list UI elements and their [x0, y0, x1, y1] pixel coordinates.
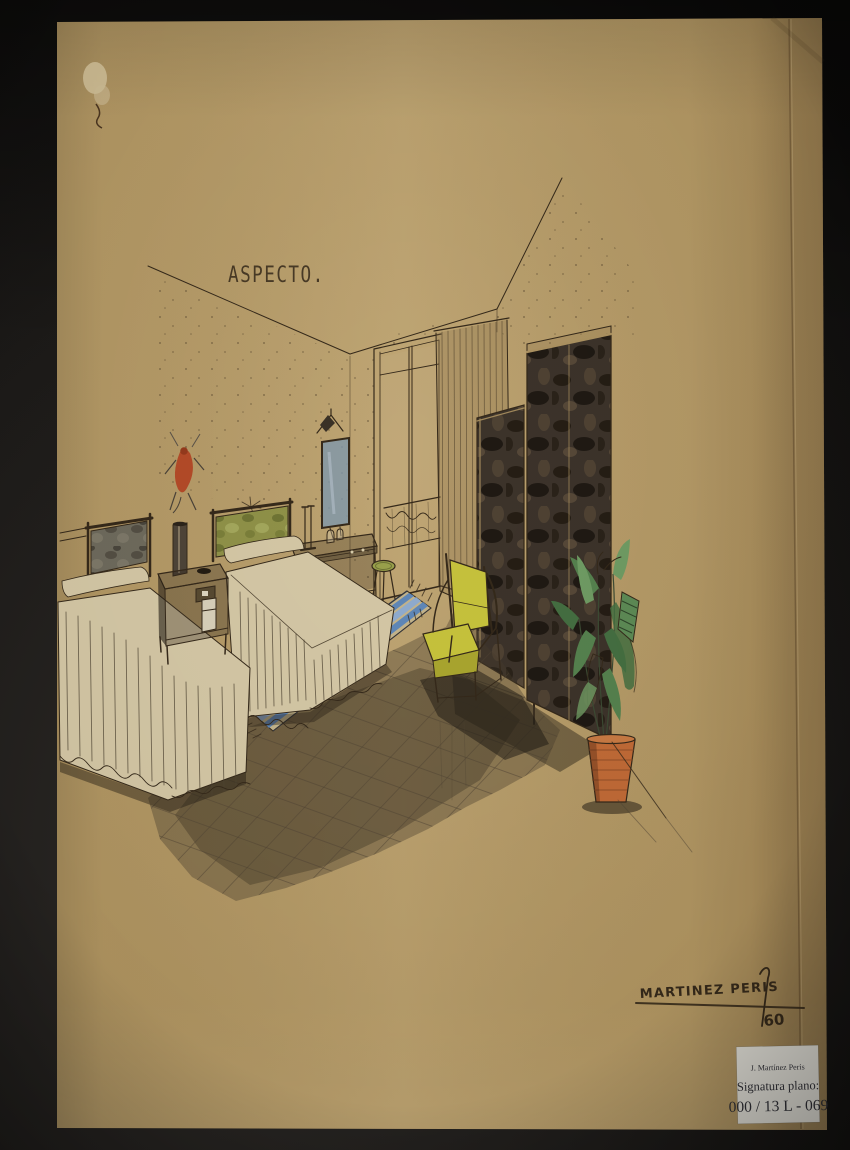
photograph-of-drawing: ASPECTO.: [0, 0, 850, 1150]
photo-vignette: [0, 0, 850, 1150]
scene: ASPECTO.: [0, 0, 850, 1150]
